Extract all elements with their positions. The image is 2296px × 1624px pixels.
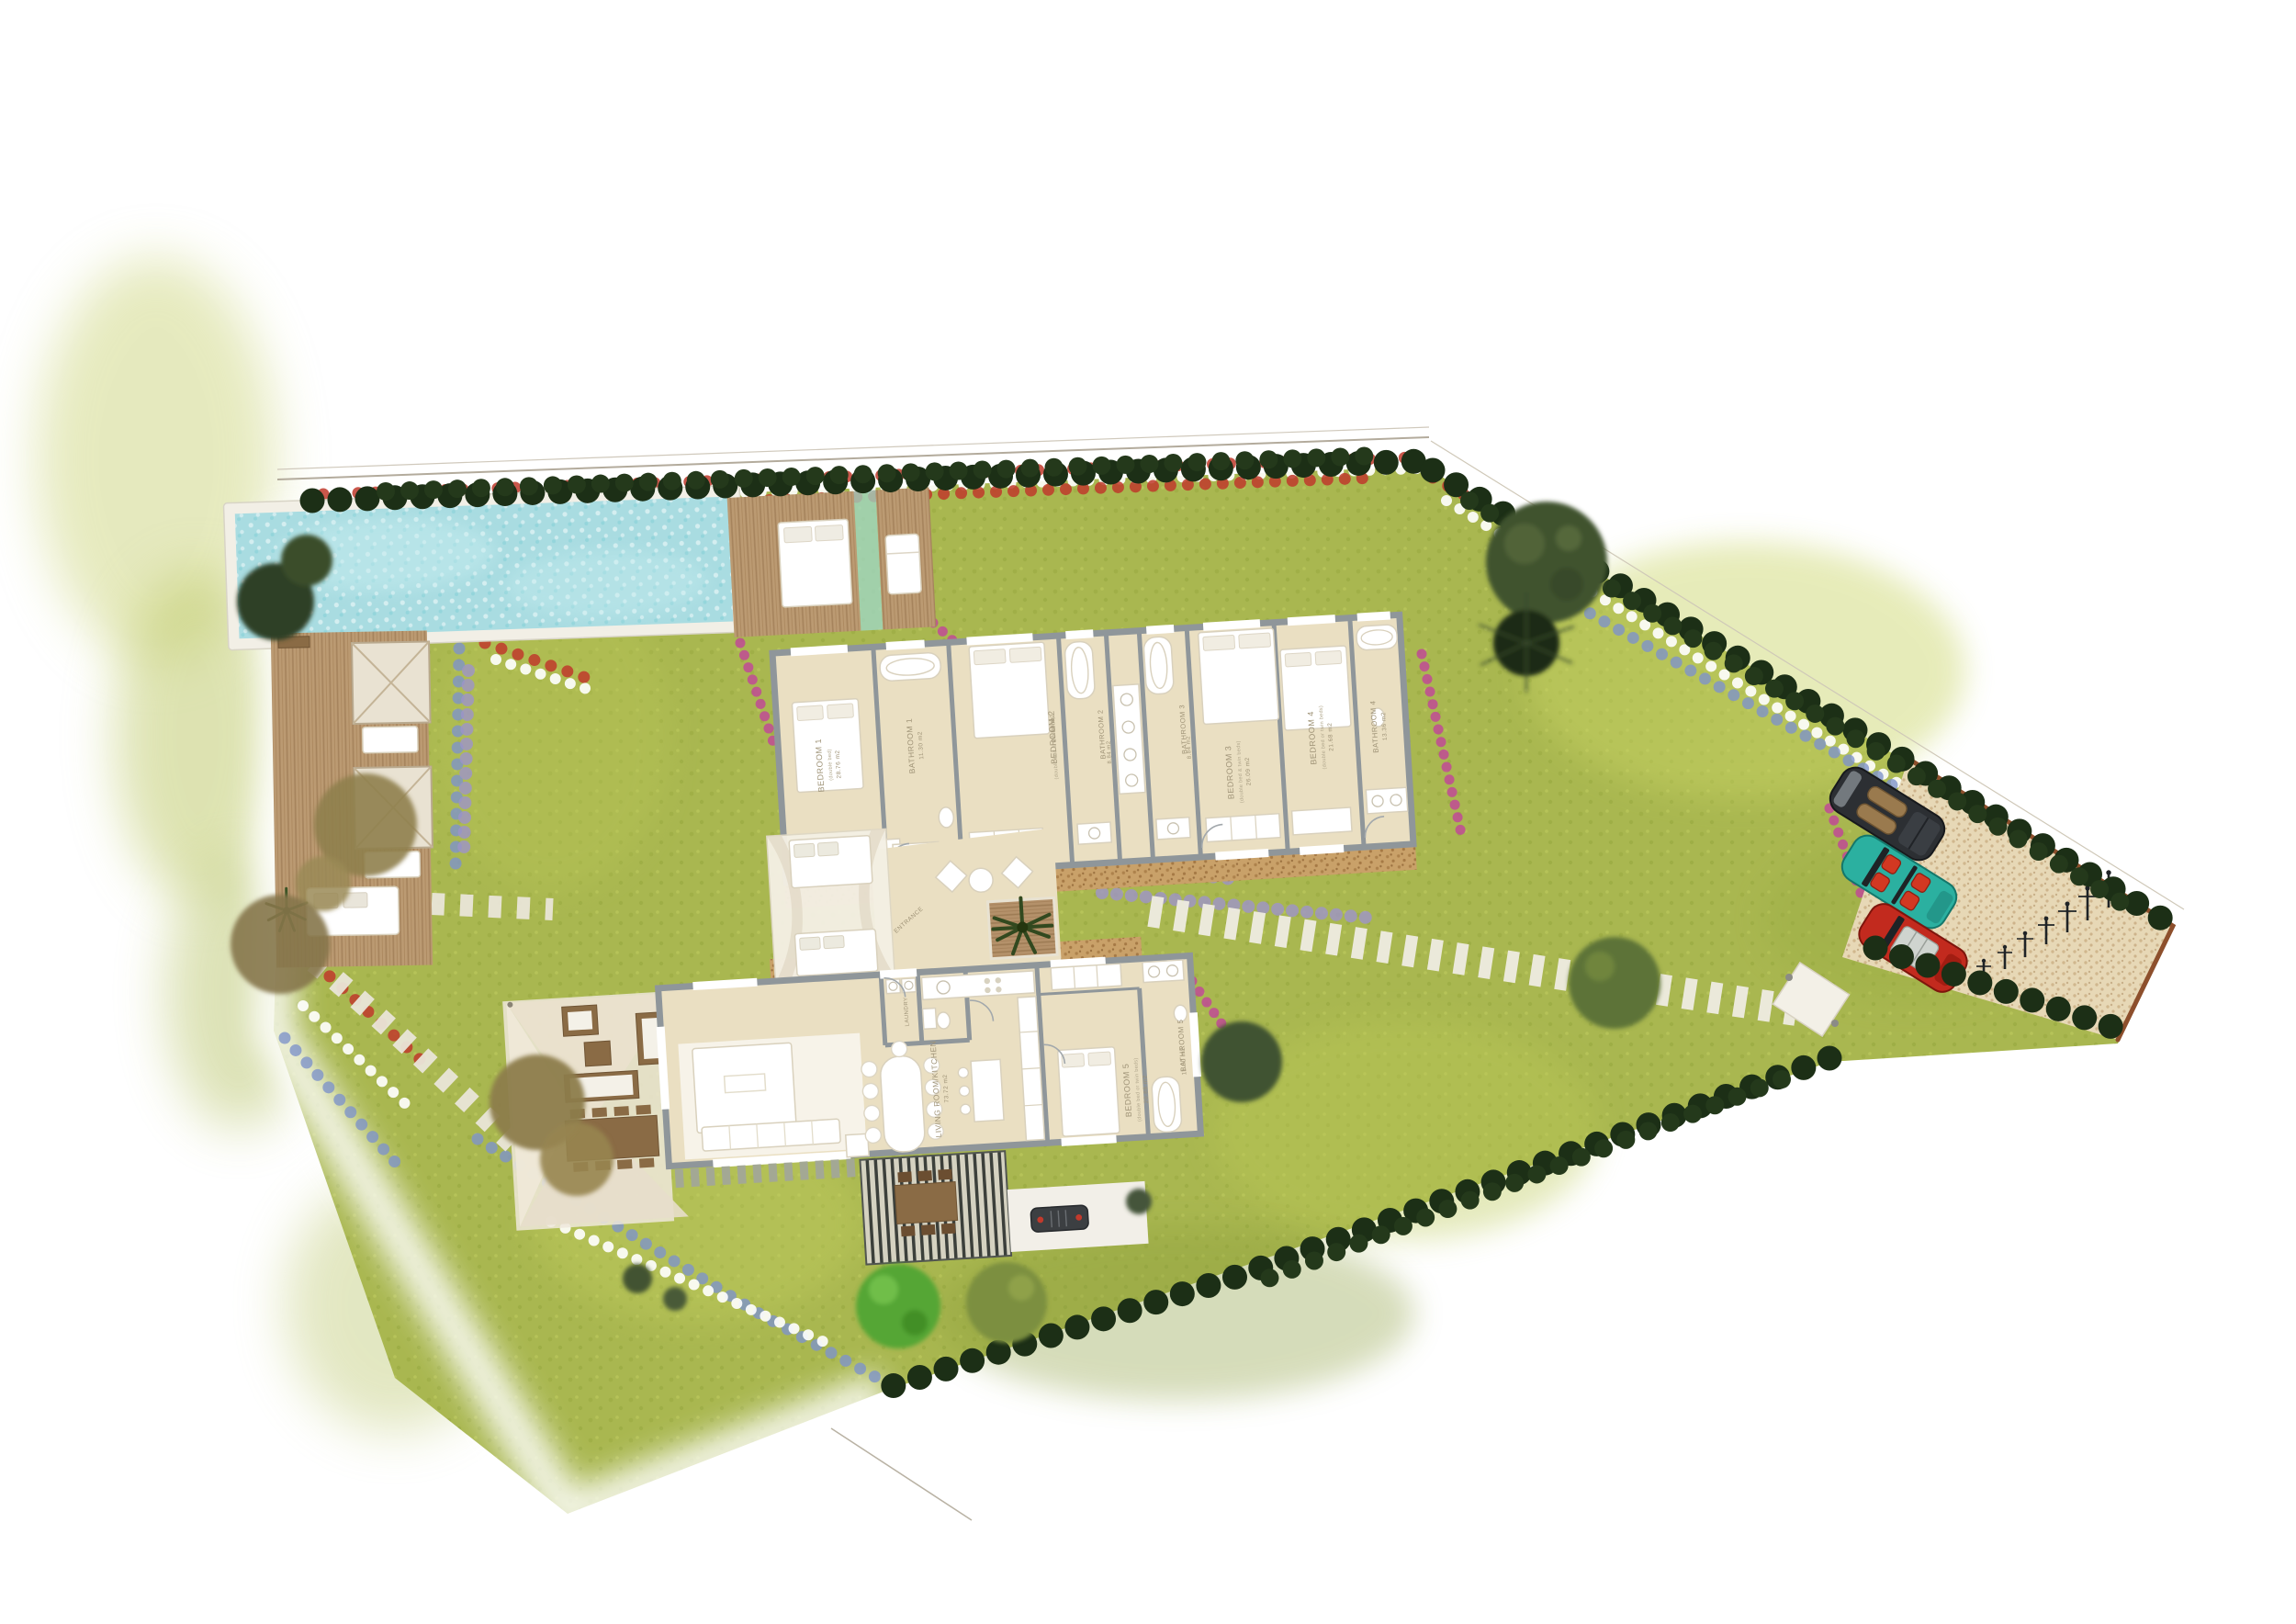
pool-deck [727, 488, 937, 637]
dining-table [880, 1055, 926, 1153]
toilet [937, 1012, 951, 1030]
tree-bright-green [856, 1264, 940, 1348]
shrub [663, 1287, 687, 1311]
sun-lounger [885, 534, 921, 594]
pergola-table [895, 1182, 957, 1224]
kitchen-sink [937, 981, 951, 995]
tree-by-bathroom5 [1201, 1021, 1282, 1102]
wardrobe [1051, 964, 1121, 990]
tree-east-lawn [1569, 937, 1660, 1029]
kitchen-island [971, 1059, 1004, 1122]
survey-line [831, 1428, 972, 1520]
lounger-mat-1 [363, 727, 418, 753]
site-plan-canvas: BEDROOM 1 (double bed) 28.76 m2 BATHROOM… [0, 0, 2296, 1624]
wardrobe [1292, 807, 1352, 835]
bathtub [1143, 637, 1175, 695]
tree-olive-south [966, 1262, 1047, 1343]
bathtub [1356, 625, 1398, 651]
tree-large-northeast [1486, 502, 1607, 623]
round-table [968, 867, 994, 893]
canopy-daybeds [767, 829, 895, 983]
cabana-1 [352, 642, 431, 724]
wardrobe [1206, 814, 1280, 842]
outdoor-dining-pergola [860, 1151, 1011, 1264]
site-plan-svg: BEDROOM 1 (double bed) 28.76 m2 BATHROOM… [0, 0, 2296, 1624]
sectional-sofa [692, 1043, 796, 1133]
palm-planter [987, 896, 1057, 958]
shower [923, 1008, 937, 1029]
coffee-table [584, 1041, 612, 1066]
shrub [1126, 1189, 1152, 1214]
bathtub [1064, 641, 1096, 700]
toilet [939, 806, 954, 828]
bbq-grill [1030, 1205, 1088, 1233]
bathtub [879, 652, 941, 682]
bathtub [1152, 1076, 1183, 1133]
tree-west-boundary [231, 895, 330, 994]
shrub [623, 1264, 652, 1293]
washer [886, 979, 901, 994]
